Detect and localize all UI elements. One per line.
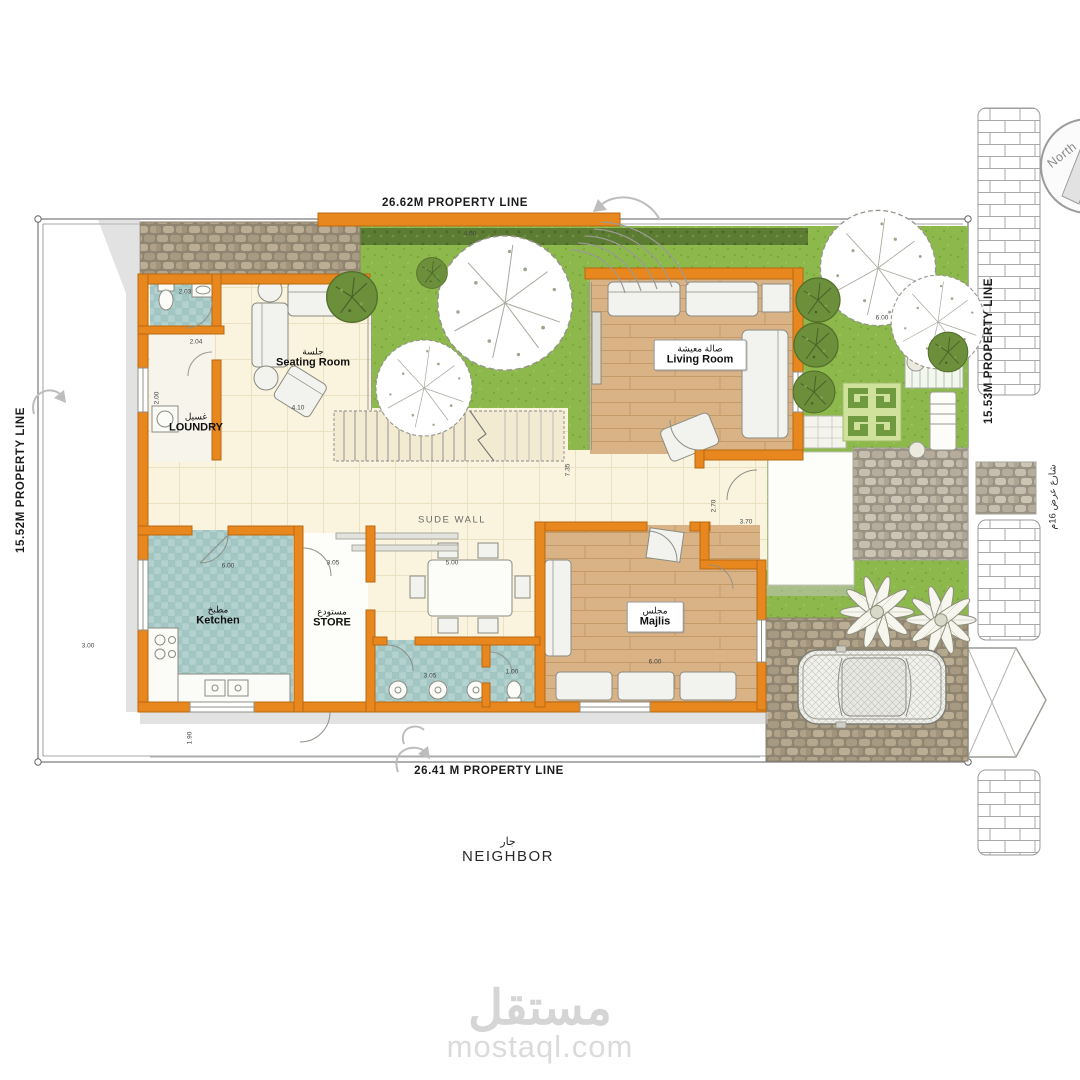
tv-unit [592, 312, 601, 384]
shrub-icon [417, 258, 448, 289]
dimension-label: 6.00 [876, 315, 889, 322]
dimension-label: 3.05 [327, 560, 340, 567]
driveway-gate [968, 648, 1046, 757]
room-label-loundry-ar: غسيل [169, 412, 223, 422]
car [798, 646, 946, 728]
dimension-label: 7.35 [565, 464, 572, 477]
room-label-living-ar: صالة معيشة [667, 344, 734, 354]
watermark-logo: مستقل [468, 980, 612, 1036]
room-label-store-en: STORE [313, 617, 351, 630]
dimension-label: 5.00 [446, 560, 459, 567]
room-label-kitchen-ar: مطبخ [196, 605, 239, 615]
dimension-label: 2.00 [154, 392, 161, 405]
room-label-seating: جلسة Seating Room [276, 347, 350, 370]
dimension-label: 3.70 [740, 519, 753, 526]
stepping-pad [804, 416, 846, 448]
room-label-kitchen-en: Ketchen [196, 615, 239, 628]
palm-icon [840, 575, 914, 649]
room-label-loundry: غسيل LOUNDRY [169, 412, 223, 435]
property-line-right-label: 15.53M PROPERTY LINE [983, 278, 995, 424]
watermark-site: mostaql.com [447, 1029, 634, 1065]
shrub-icon [928, 332, 968, 372]
dimension-label: 6.00 [222, 563, 235, 570]
room-label-living: صالة معيشة Living Room [654, 340, 747, 371]
front-fence-wall [318, 213, 620, 226]
neighbor-label: جار NEIGHBOR [462, 836, 554, 866]
terrace-slab [768, 452, 854, 585]
dimension-label: 2.03 [179, 289, 192, 296]
dimension-label: 2.70 [711, 500, 718, 513]
street-sidewalk [968, 108, 1046, 855]
hedge-strip [330, 228, 808, 245]
tree-icon [438, 236, 572, 370]
dimension-label: 3.05 [424, 673, 437, 680]
tree-icon [376, 340, 472, 436]
room-label-majlis-en: Majlis [640, 616, 671, 629]
dimension-label: 4.00 [464, 231, 477, 238]
entry-cobble-path [140, 222, 360, 276]
room-label-seating-en: Seating Room [276, 357, 350, 370]
floor-plan-canvas: 26.62M PROPERTY LINE 26.41 M PROPERTY LI… [0, 0, 1080, 1080]
dimension-label: 1.90 [187, 732, 194, 745]
side-wall-note: SUDE WALL [418, 515, 486, 526]
dimension-label: 2.04 [190, 339, 203, 346]
stone-court [853, 448, 968, 560]
property-line-bottom-label: 26.41 M PROPERTY LINE [414, 765, 564, 777]
compass [1041, 119, 1080, 213]
street-label: شارع عرض 16م [1048, 464, 1059, 529]
neighbor-label-ar: جار [462, 836, 554, 848]
room-label-kitchen: مطبخ Ketchen [196, 605, 239, 628]
room-label-loundry-en: LOUNDRY [169, 422, 223, 435]
shrub-icon [793, 371, 835, 413]
room-label-majlis: مجلس Majlis [627, 602, 684, 633]
property-line-left-label: 15.52M PROPERTY LINE [15, 407, 27, 553]
shrub-icon [794, 323, 838, 367]
dimension-label: 3.00 [82, 643, 95, 650]
shrub-icon [796, 278, 840, 322]
room-label-living-en: Living Room [667, 354, 734, 367]
shrub-icon [327, 272, 378, 323]
room-label-store: مستودع STORE [313, 607, 351, 630]
dimension-label: 1.00 [506, 669, 519, 676]
room-label-majlis-ar: مجلس [640, 606, 671, 616]
neighbor-label-en: NEIGHBOR [462, 848, 554, 866]
garden-lattice [843, 383, 901, 441]
room-label-seating-ar: جلسة [276, 347, 350, 357]
dimension-label: 4.10 [292, 405, 305, 412]
room-label-store-ar: مستودع [313, 607, 351, 617]
plan-graphics [0, 0, 1080, 1080]
palm-icon [906, 585, 976, 656]
property-line-top-label: 26.62M PROPERTY LINE [382, 197, 528, 209]
dimension-label: 6.00 [649, 659, 662, 666]
